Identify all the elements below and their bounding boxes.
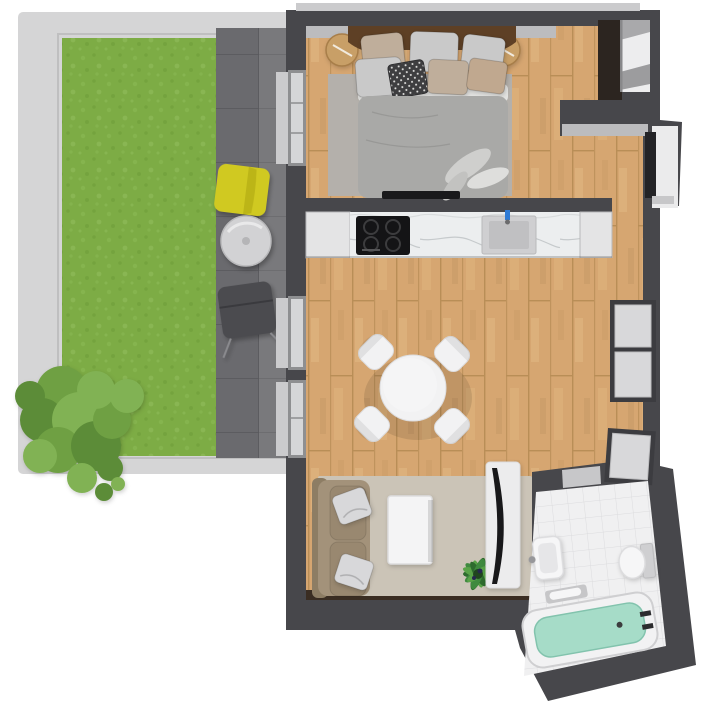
pillow	[466, 58, 508, 95]
right-wall-windows	[604, 300, 656, 485]
bush-sprig	[95, 483, 113, 501]
bush-sprig	[111, 477, 125, 491]
yellow-lounge-chair	[213, 163, 270, 217]
glass-pane	[291, 73, 303, 163]
kitchen-cabinet-left	[306, 212, 350, 258]
hall-wall-sill	[562, 124, 648, 136]
hallway-floor	[560, 136, 643, 198]
bush-foliage	[15, 381, 45, 411]
hall-passage-floor	[612, 198, 643, 260]
window-pane	[615, 352, 651, 397]
coffee-table	[388, 496, 433, 564]
bathroom	[517, 466, 666, 676]
coffee-table-shadow	[428, 500, 433, 562]
glass-sill	[276, 72, 288, 164]
wall-tv-bar	[382, 191, 460, 199]
sink-basin	[489, 221, 529, 249]
bush-foliage	[110, 379, 144, 413]
window-niche-angled	[604, 428, 656, 485]
floor-plan-render	[0, 0, 716, 720]
kitchen-sink	[482, 210, 536, 254]
drain	[505, 220, 510, 225]
patio-table	[221, 216, 271, 266]
plant-berry	[478, 569, 483, 574]
window-pane	[615, 305, 651, 347]
glass-pane	[291, 299, 303, 367]
sofa	[312, 478, 375, 598]
top-exterior-sill	[296, 3, 640, 11]
floor-plan-svg	[0, 0, 716, 720]
bush-foliage	[23, 439, 57, 473]
bed-pillows	[355, 31, 508, 99]
window-pane	[610, 433, 651, 480]
bush-foliage	[77, 371, 115, 409]
kitchen-cabinet-right	[580, 212, 612, 258]
bush	[15, 366, 144, 501]
closet-edge	[620, 20, 623, 92]
cooktop	[356, 216, 410, 255]
yellow-chair-seat	[213, 163, 270, 217]
entrance-door-leaf	[645, 132, 656, 198]
glass-sill	[276, 298, 288, 368]
bush-foliage	[67, 463, 97, 493]
patio-table-pole	[242, 237, 250, 245]
faucet	[505, 210, 510, 220]
wardrobe	[598, 20, 622, 100]
kitchen	[306, 210, 612, 259]
dotted-pillow	[387, 59, 428, 99]
tv-unit	[486, 462, 520, 588]
glass-sill	[276, 382, 288, 456]
sink-bowl	[537, 542, 558, 574]
entrance-threshold	[652, 196, 674, 204]
pillow	[427, 59, 469, 95]
double-bed	[348, 26, 516, 204]
plant-berry	[472, 576, 476, 580]
coffee-table-top	[388, 496, 432, 564]
terrace	[15, 12, 302, 501]
dining-table-highlight	[383, 358, 437, 412]
cooktop-controls	[362, 249, 380, 251]
dark-chair-seat	[217, 280, 278, 339]
